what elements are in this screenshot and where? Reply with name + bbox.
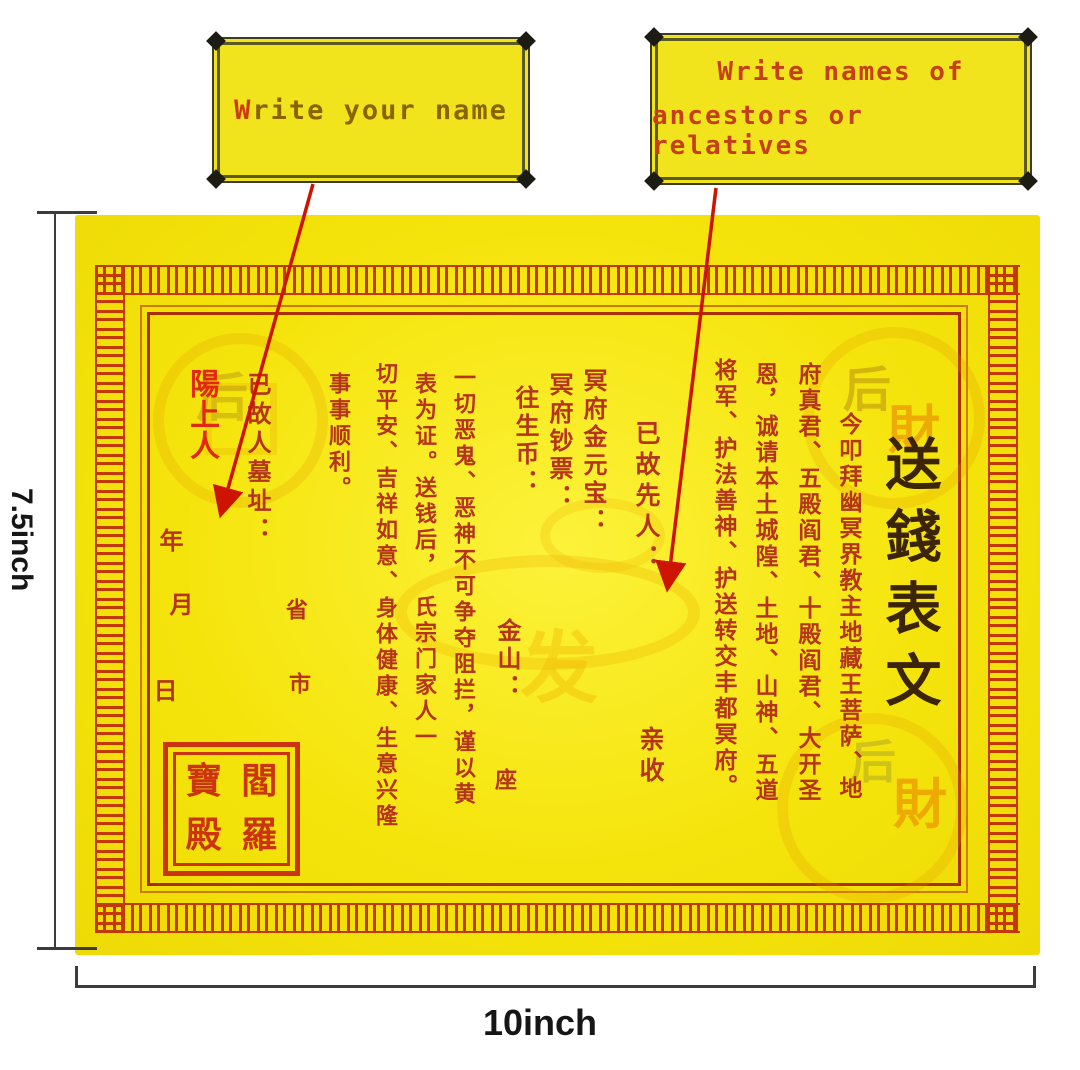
invocation-column-3: 恩，诚请本土城隍、土地、山神、五道 [752,362,775,804]
invocation-column-4: 将军、护法善神、护送转交丰都冥府。 [711,358,734,800]
seal-characters: 寶 閻 殿 羅 [173,752,290,866]
frame-corner-icon [644,171,664,191]
offering-rebirth-money: 往生币： [513,385,537,497]
seal-char-top-left: 寶 [186,764,222,800]
frame-corner-icon [644,27,664,47]
vow-column-4: 事事顺利。 [326,372,348,502]
vow-column-1: 一切恶鬼、恶神不可争夺阻拦，谨以黄 [451,366,473,808]
meander-border-top [95,265,1020,295]
yama-hall-seal: 寶 閻 殿 羅 [163,742,300,876]
callout-right-line1: Write names of [717,57,964,87]
province-label: 省 [283,598,305,620]
width-dimension-cap-left [75,966,78,988]
living-person-label: 陽上人 [186,368,216,461]
invocation-column-1: 今叩拜幽冥界教主地藏王菩萨、地 [836,412,859,802]
frame-corner-icon [516,169,536,189]
height-dimension-cap-top [37,211,97,214]
year-label: 年 [157,528,181,552]
paper-title: 送錢表文 [880,435,936,723]
frame-corner-icon [206,31,226,51]
invocation-column-2: 府真君、五殿阎君、十殿阎君、大开圣 [795,362,818,804]
callout-right-line2: ancestors or relatives [652,101,1030,161]
grave-address-label: 已故人墓址： [245,372,269,546]
vow-column-3: 切平安、吉祥如意、身体健康、生意兴隆 [373,362,395,830]
gold-mountain-label: 金山： [495,618,519,702]
seal-char-bottom-left: 殿 [186,818,222,854]
width-dimension-cap-right [1033,966,1036,988]
callout-left-rest: rite your name [252,95,508,126]
height-dimension-label: 7.5inch [4,488,38,591]
frame-corner-icon [1018,171,1038,191]
height-dimension-line [54,212,56,950]
height-dimension-cap-bottom [37,947,97,950]
meander-border-bottom [95,903,1020,933]
vow-column-2: 表为证。送钱后， 氏宗门家人一 [412,372,434,751]
annotated-joss-paper-diagram: Write your name Write names of ancestors… [0,0,1080,1070]
seat-label: 座 [492,768,514,790]
meander-border-left [95,265,125,933]
offering-banknotes: 冥府钞票： [547,372,571,512]
seal-char-top-right: 閻 [241,764,277,800]
receive-label: 亲收 [638,726,663,788]
meander-border-right [988,265,1018,933]
day-label: 日 [151,678,175,702]
width-dimension-line [76,985,1036,988]
callout-left-text: Write your name [234,95,508,126]
callout-write-ancestor-names: Write names of ancestors or relatives [650,33,1032,185]
callout-write-your-name: Write your name [212,37,530,183]
frame-corner-icon [206,169,226,189]
callout-left-first-letter: W [234,95,252,126]
seal-char-bottom-right: 羅 [241,818,277,854]
deceased-name-label: 已故先人： [634,420,659,575]
frame-corner-icon [516,31,536,51]
month-label: 月 [167,592,191,616]
watermark-char: 財 [893,760,947,839]
frame-corner-icon [1018,27,1038,47]
watermark-char: 后 [843,350,891,420]
city-label: 市 [286,672,308,694]
width-dimension-label: 10inch [430,1002,650,1044]
offering-gold-ingots: 冥府金元宝： [581,368,605,536]
